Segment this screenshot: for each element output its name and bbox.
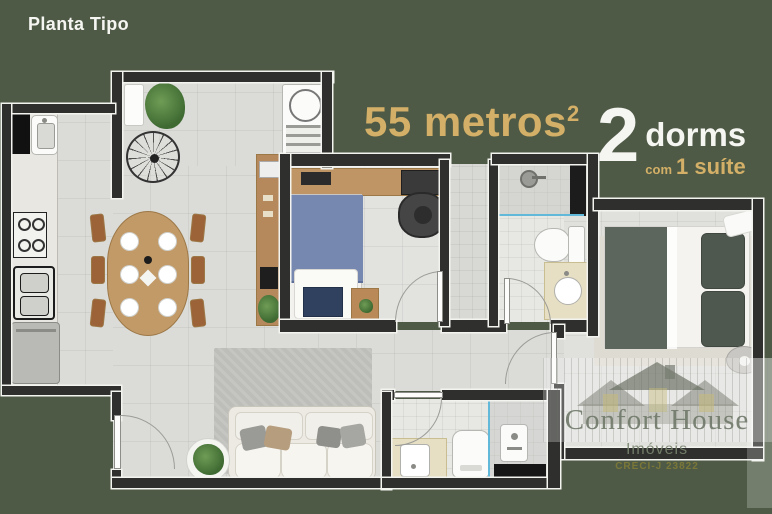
- page-title: Planta Tipo: [28, 14, 129, 35]
- plate: [158, 232, 177, 251]
- kitchen-sink: [31, 115, 58, 155]
- suite-blanket-green: [605, 227, 667, 349]
- suite-pillow: [701, 291, 745, 347]
- shelf-decor: [263, 195, 273, 201]
- oven-drawer: [20, 296, 49, 316]
- bathroom2-door-leaf: [394, 392, 443, 398]
- dining-table: [107, 211, 189, 336]
- office-chair: [398, 192, 446, 238]
- dorms-column: dorms com1 suíte: [645, 118, 746, 180]
- wall: [2, 104, 115, 113]
- hall-closet-shelves: [447, 164, 491, 322]
- watermark-creci: CRECI-J 23822: [544, 461, 770, 472]
- shower-head: [520, 170, 538, 188]
- dining-chair: [190, 213, 207, 242]
- plant-laundry: [145, 83, 185, 129]
- burner: [18, 218, 31, 231]
- toilet1-bowl: [534, 228, 570, 262]
- vanity1-faucet: [564, 271, 569, 276]
- toilet1-tank: [568, 226, 585, 264]
- dishwasher-handle: [16, 329, 56, 332]
- wall: [489, 160, 498, 326]
- shower2-knob: [511, 433, 518, 440]
- vanity2-faucet: [411, 464, 416, 469]
- suite-sheet-fold: [667, 227, 677, 349]
- wall: [382, 392, 391, 489]
- fan-hub: [150, 154, 159, 163]
- stereo: [260, 267, 278, 289]
- vanity2-sink: [400, 444, 430, 477]
- vanity1: [544, 262, 588, 320]
- area-value: 55 metros: [364, 98, 567, 145]
- plate: [120, 298, 139, 317]
- wall: [112, 72, 122, 198]
- throw-pillow-gray: [316, 425, 343, 448]
- wall: [112, 478, 386, 488]
- burner: [18, 239, 31, 252]
- shower2-glass: [488, 400, 490, 478]
- cooktop: [13, 212, 47, 258]
- area-superscript: 2: [567, 101, 580, 126]
- plate: [120, 265, 139, 284]
- plant-bedside: [359, 299, 373, 313]
- oven: [13, 266, 55, 320]
- sink-faucet: [42, 118, 47, 123]
- shelf-decor: [263, 211, 273, 217]
- toilet2-base: [460, 465, 482, 471]
- plate: [120, 232, 139, 251]
- table-centerpiece: [144, 256, 152, 264]
- laptop-on-bed: [303, 287, 343, 317]
- dining-chair: [190, 298, 207, 327]
- dorms-com: com: [645, 162, 672, 177]
- throw-pillow-tan: [263, 425, 292, 451]
- sofa-seat: [327, 443, 373, 479]
- bathroom1-door-leaf: [504, 278, 510, 324]
- bedside-table: [351, 288, 379, 324]
- sink-basin: [37, 123, 55, 149]
- burner: [32, 239, 45, 252]
- office-chair-seat: [414, 206, 432, 224]
- wall: [492, 154, 598, 164]
- ironing-board: [124, 84, 144, 126]
- watermark-subtitle: Imóveis: [544, 441, 770, 459]
- dishwasher: [11, 322, 60, 384]
- plate: [158, 265, 177, 284]
- watermark-brand: Confort House: [544, 404, 770, 437]
- table-napkin: [140, 270, 157, 287]
- shower1-glass: [496, 214, 584, 216]
- vanity1-sink: [554, 277, 582, 305]
- dining-chair: [191, 256, 205, 284]
- dining-chair: [90, 213, 107, 242]
- throw-pillow-gray: [339, 423, 366, 449]
- wall: [2, 104, 11, 395]
- dorms-suite: 1 suíte: [676, 154, 746, 179]
- wall: [588, 154, 598, 336]
- shower2-bar: [507, 447, 522, 450]
- sofa: [228, 406, 376, 480]
- area-label: 55 metros2: [364, 98, 580, 146]
- floorplan-poster: Planta Tipo 55 metros2 2 dorms com1 suít…: [0, 0, 772, 514]
- oven-door: [20, 273, 49, 293]
- bedroom2-door-leaf: [437, 271, 443, 322]
- dorms-label: 2 dorms com1 suíte: [597, 100, 746, 180]
- shower2-fixture: [500, 424, 528, 462]
- plant-shelf: [258, 295, 280, 323]
- shelf-unit: [256, 154, 280, 326]
- washer-drum: [289, 89, 322, 122]
- dining-chair: [90, 298, 107, 327]
- wall: [280, 320, 396, 332]
- toilet2: [452, 430, 490, 478]
- microwave: [259, 161, 280, 178]
- ceiling-fan: [126, 131, 180, 183]
- double-bed: [604, 226, 750, 348]
- wall: [594, 199, 763, 210]
- wall: [280, 154, 450, 166]
- plant-entry: [193, 444, 224, 475]
- dorms-number: 2: [597, 100, 639, 172]
- shower2-mat: [494, 464, 546, 479]
- refrigerator: [12, 114, 30, 154]
- suite-pillow: [701, 233, 745, 289]
- bathroom1-cabinet: [570, 162, 586, 216]
- burner: [32, 218, 45, 231]
- wall: [2, 386, 121, 395]
- dining-chair: [91, 256, 105, 284]
- shower-arm: [532, 176, 546, 179]
- dorms-subtitle: com1 suíte: [645, 154, 746, 180]
- plate: [158, 298, 177, 317]
- washing-machine: [282, 84, 324, 162]
- wall: [280, 154, 290, 332]
- entry-door-leaf: [114, 415, 121, 469]
- monitor: [301, 172, 331, 185]
- wall: [112, 72, 333, 82]
- dorms-word: dorms: [645, 118, 746, 151]
- wall: [382, 478, 560, 488]
